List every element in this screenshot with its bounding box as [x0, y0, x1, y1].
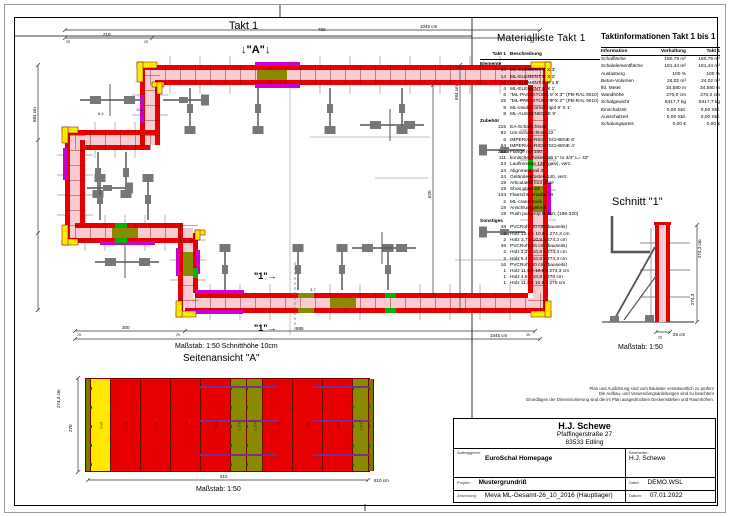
alignment-rail — [200, 454, 278, 456]
taktinfo-row: Beton-Volumen24,02 m³24,02 m³ — [601, 78, 720, 85]
taktinfo-row: lfd. Meter34,580 m34,580 m — [601, 85, 720, 92]
elevation-panel-r3: 3'x9' — [201, 379, 231, 471]
elevation-panel-o15: 1.5'x9' — [231, 379, 247, 471]
elevation-panel-r3: 3'x9' — [171, 379, 201, 471]
taktinfo-row: Schalelementfläche181,44 m²181,44 m² — [601, 63, 720, 70]
seitenansicht-elevation: 2'x9'3'x9'3'x9'3'x9'3'x9'1.5'x9'1.5'x9'3… — [85, 378, 370, 472]
panel-label: 3'x9' — [305, 421, 310, 429]
title-block: H.J. Schewe Pfaffingerstraße 27 83533 Ed… — [453, 418, 716, 503]
elevation-panel-ae — [369, 379, 374, 471]
alignment-rail — [313, 454, 370, 456]
material-desc: ML-AUSSENECKE 9' — [510, 112, 556, 118]
panel-label: 3'x9' — [275, 421, 280, 429]
taktinfo-row: Schalgewicht8417,7 kg8417,7 kg — [601, 99, 720, 106]
material-row: 19Push pull prop R 250, (196-320) — [480, 212, 600, 218]
company-street: Pfaffingerstraße 27 — [454, 431, 715, 439]
zeichnung-cell: Zeichnung: Meva ML-Gesamt-26_10_2016 (Ha… — [454, 491, 626, 502]
plan-title: Takt 1 — [15, 20, 472, 32]
datum-value: 07.01.2022 — [650, 492, 683, 499]
elevation-panel-r3: 3'x9' — [111, 379, 141, 471]
seitenansicht-title: Seitenansicht "A" — [183, 353, 260, 364]
projekt-cell: Projekt: Mustergrundriß — [454, 478, 626, 491]
elevation-panel-r3: 3'x9' — [263, 379, 293, 471]
alignment-rail — [313, 386, 370, 388]
taktinfo-row: Schalungspreis0,00 €0,00 € — [601, 121, 720, 128]
seitenansicht-scale: Maßstab: 1:50 — [196, 486, 241, 493]
taktinfo-table: Information Vorhaltung Takt 1 Schalfläch… — [601, 47, 720, 128]
plan-sheet: 210 760 1045 cm 684 cm 620 684 cm 300 88… — [0, 0, 730, 517]
plan-scale-note: Maßstab: 1:50 Schnitthöhe 10cm — [175, 343, 278, 350]
alignment-rail — [200, 386, 278, 388]
panel-label: 3'x9' — [123, 421, 128, 429]
alignment-rail — [200, 420, 278, 422]
material-row: 1Holz 11,6 x 10,8 x 270 cm — [480, 281, 600, 287]
bearbeiter-value: H.J. Schewe — [629, 455, 666, 462]
auftraggeber-cell: Auftraggeber: EuroSchal Homepage — [454, 449, 626, 478]
company-name: H.J. Schewe — [454, 421, 715, 431]
material-list-header: Takt 1 Beschreibung — [480, 52, 600, 60]
material-qty: 1 — [480, 281, 506, 287]
schnitt-scale: Maßstab: 1:50 — [618, 344, 663, 351]
elevation-panel-o15: 1.5'x9' — [247, 379, 263, 471]
bearbeiter-cell: Bearbeiter: H.J. Schewe — [626, 449, 715, 478]
material-desc: Push pull prop R 250, (196-320) — [510, 212, 578, 218]
taktinfo-row: Einschalzeit0,00 Std.0,00 Std. — [601, 107, 720, 114]
materialliste-title: Materialliste Takt 1 — [497, 33, 586, 44]
disclaimer: Plan und Ausführung sind vom Bauleiter v… — [380, 386, 714, 402]
material-desc: Holz 11,6 x 10,8 x 270 cm — [510, 281, 565, 287]
elevation-panel-r3: 3'x9' — [323, 379, 353, 471]
panel-label: 3'x9' — [153, 421, 158, 429]
material-list: Takt 1 Beschreibung Elemente60ML-ELEMENT… — [480, 52, 600, 288]
elevation-panel-o15: 1.5'x9' — [353, 379, 369, 471]
alignment-rail — [313, 420, 370, 422]
taktinfo-header: Information Vorhaltung Takt 1 — [601, 47, 720, 56]
panel-label: 2'x9' — [98, 421, 103, 429]
panel-label: 3'x9' — [335, 421, 340, 429]
material-col-desc: Beschreibung — [510, 52, 542, 58]
zeichnung-value: Meva ML-Gesamt-26_10_2016 (Hauptlager) — [485, 492, 613, 499]
company-block: H.J. Schewe Pfaffingerstraße 27 83533 Ed… — [454, 419, 715, 449]
material-qty: 8 — [480, 112, 506, 118]
taktinfo-title: Taktinformationen Takt 1 bis 1 — [601, 32, 715, 41]
company-city: 83533 Edling — [454, 439, 715, 447]
panel-label: 3'x9' — [183, 421, 188, 429]
taktinfo-row: Auslastung100 %100 % — [601, 71, 720, 78]
taktinfo-row: Ausschalzeit0,00 Std.0,00 Std. — [601, 114, 720, 121]
material-row: 8ML-AUSSENECKE 9' — [480, 112, 600, 118]
projekt-value: Mustergrundriß — [479, 479, 527, 486]
disclaimer-line: Grundlagen der Dimensionierung sind die … — [380, 397, 714, 402]
material-col-qty: Takt 1 — [480, 52, 506, 58]
panel-label: 3'x9' — [213, 421, 218, 429]
taktinfo-row: Wandhöhe270,0 cm270,0 cm — [601, 92, 720, 99]
material-qty: 19 — [480, 212, 506, 218]
taktinfo-row: Schalfläche180,79 m²180,79 m² — [601, 56, 720, 63]
datei-value: DEMO.WSL — [647, 479, 682, 486]
datei-cell: Datei: DEMO.WSL — [626, 478, 715, 491]
schnitt-title: Schnitt "1" — [612, 196, 663, 208]
auftraggeber-value: EuroSchal Homepage — [485, 455, 552, 462]
datum-cell: Datum: 07.01.2022 — [626, 491, 715, 502]
elevation-panel-r3: 3'x9' — [293, 379, 323, 471]
elevation-panel-r3: 3'x9' — [141, 379, 171, 471]
elevation-panel-y2: 2'x9' — [91, 379, 111, 471]
